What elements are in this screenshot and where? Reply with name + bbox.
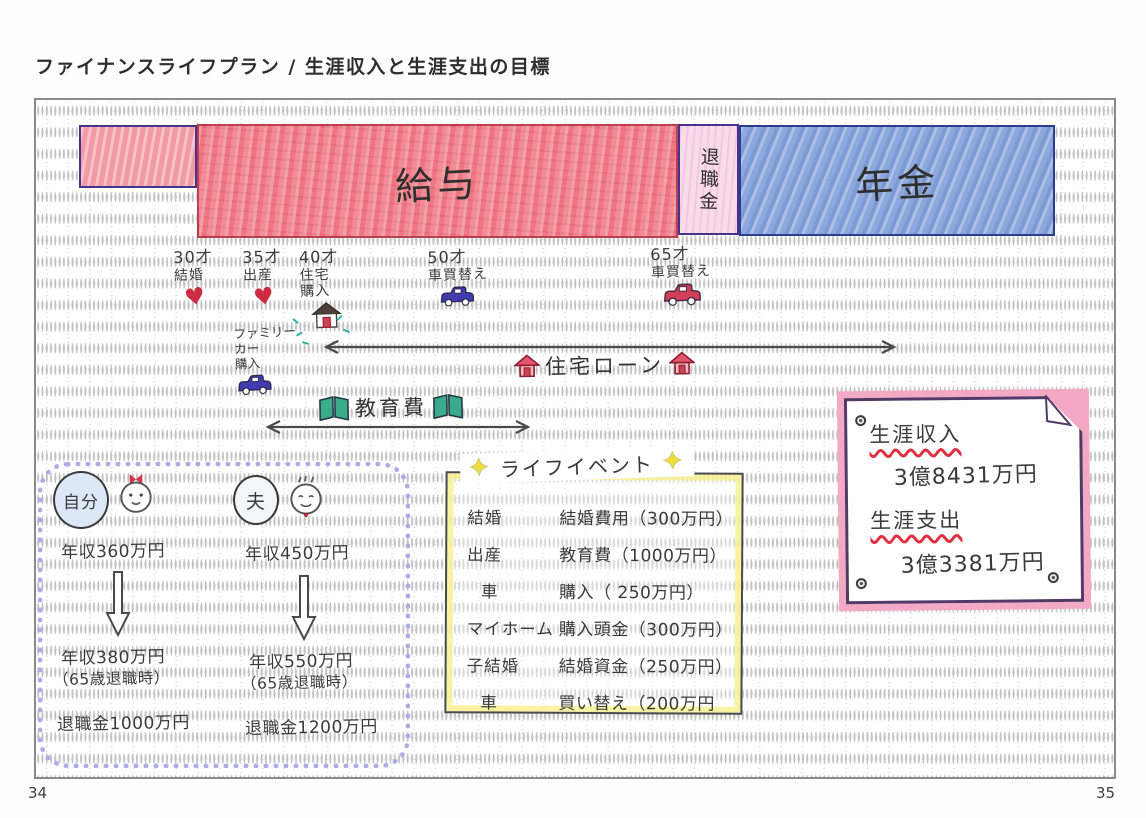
- life-events-title-text: ライフイベント: [499, 448, 654, 482]
- down-arrow-icon: [291, 573, 317, 643]
- life-event-row: 車 購入（ 250万円）: [467, 571, 733, 609]
- confetti: [343, 329, 350, 334]
- person-self-name: 自分: [63, 488, 99, 513]
- car-icon-red: [661, 282, 703, 307]
- milestone-event: 車買替え: [428, 266, 501, 285]
- sparkle-icon: ✦: [468, 453, 493, 484]
- milestone-event-line2: 購入: [300, 282, 357, 300]
- housing-loan-label: 住宅ローン: [514, 348, 695, 381]
- page-number-right: 35: [1096, 784, 1115, 802]
- person-husband-name-bubble: 夫: [233, 475, 279, 525]
- event-item: 車: [467, 578, 559, 602]
- event-cost: 購入頭金（300万円）: [559, 615, 733, 641]
- milestone-event: 出産: [243, 266, 304, 284]
- book-spread: ファイナンスライフプラン / 生涯収入と生涯支出の目標 給与 退職金 年金 30…: [0, 0, 1146, 818]
- man-face-icon: [285, 475, 327, 523]
- heart-icon: ♥: [252, 285, 276, 310]
- book-icon: [432, 393, 464, 420]
- milestone-event-line1: 住宅: [299, 266, 356, 284]
- income-now: 年収450万円: [245, 538, 349, 565]
- heart-icon: ♥: [183, 285, 207, 310]
- milestone-age40: 40才 住宅 購入: [299, 242, 358, 330]
- income-now: 年収360万円: [61, 536, 165, 563]
- life-event-row: 出産 教育費（1000万円）: [467, 534, 733, 572]
- confetti: [302, 341, 309, 345]
- down-arrow-icon: [105, 571, 131, 637]
- person-husband-name: 夫: [246, 487, 266, 514]
- income-note: （65歳退職時）: [53, 666, 170, 690]
- sparkle-icon: ✦: [661, 446, 686, 477]
- lifetime-summary-note: 生涯収入 3億8431万円 生涯支出 3億3381万円: [844, 396, 1084, 604]
- family-car-line3: 購入: [235, 353, 298, 371]
- pin-icon: [1048, 572, 1059, 583]
- education-arrow: [262, 418, 534, 436]
- house-red-icon: [669, 351, 695, 375]
- milestone-age: 40才: [299, 242, 356, 268]
- event-item: 出産: [467, 541, 559, 565]
- milestone-age65: 65才 車買替え: [650, 239, 724, 308]
- milestone-age: 50才: [427, 242, 500, 268]
- milestone-age: 30才: [173, 242, 238, 268]
- milestone-age: 65才: [650, 239, 723, 265]
- car-icon-blue: [236, 374, 274, 397]
- event-cost: 買い替え（200万円: [558, 689, 715, 715]
- house-red-icon: [514, 354, 540, 378]
- folded-corner: [1043, 395, 1083, 435]
- lifetime-expense-label: 生涯支出: [870, 504, 962, 535]
- income-note: （65歳退職時）: [241, 670, 358, 694]
- event-item: 子結婚: [467, 652, 559, 676]
- event-item: 結婚: [467, 504, 559, 528]
- income-future: 年収550万円: [249, 646, 353, 673]
- bar-early-salary: [79, 125, 197, 188]
- retirement-money: 退職金1000万円: [57, 708, 190, 735]
- lifetime-income-value: 3億8431万円: [893, 456, 1038, 492]
- salary-label: 給与: [394, 151, 481, 210]
- retirement-bonus-label: 退職金: [694, 146, 723, 213]
- pension-label: 年金: [854, 151, 941, 210]
- girl-face-icon: [115, 471, 157, 515]
- event-cost: 教育費（1000万円）: [559, 541, 727, 567]
- person-self-name-bubble: 自分: [53, 471, 109, 529]
- pin-icon: [856, 578, 867, 589]
- car-icon-blue: [438, 286, 476, 308]
- milestone-age50: 50才 車買替え: [427, 242, 501, 308]
- life-events-rows: 結婚 結婚費用（300万円） 出産 教育費（1000万円） 車 購入（ 250万…: [466, 497, 733, 720]
- bar-retirement-bonus: 退職金: [678, 124, 739, 235]
- pin-icon: [855, 415, 866, 426]
- household-income-cloud: 自分 年収360万円 年収380万円 （65歳退職時） 退職金1000万円 夫 …: [38, 462, 410, 768]
- house-icon: [311, 302, 343, 330]
- page-title: ファイナンスライフプラン / 生涯収入と生涯支出の目標: [35, 52, 551, 79]
- housing-loan-text: 住宅ローン: [545, 349, 664, 381]
- confetti: [296, 331, 303, 337]
- bar-pension: 年金: [739, 125, 1055, 236]
- retirement-money: 退職金1200万円: [245, 712, 378, 739]
- income-future: 年収380万円: [61, 642, 165, 669]
- family-car-note: ファミリー カー 購入: [233, 323, 299, 400]
- page-number-left: 34: [28, 784, 47, 802]
- life-event-row: 子結婚 結婚資金（250万円）: [467, 645, 733, 683]
- life-events-box: 結婚 結婚費用（300万円） 出産 教育費（1000万円） 車 購入（ 250万…: [444, 471, 743, 715]
- event-cost: 結婚費用（300万円）: [559, 504, 733, 530]
- event-cost: 結婚資金（250万円）: [559, 652, 733, 678]
- life-event-row: 結婚 結婚費用（300万円）: [467, 497, 733, 535]
- event-item: マイホーム: [467, 615, 559, 639]
- life-event-row: 車 買い替え（200万円: [466, 682, 732, 720]
- person-husband-header: 夫: [233, 475, 327, 525]
- milestone-age35: 35才 出産 ♥: [242, 242, 304, 309]
- milestone-age30: 30才 結婚 ♥: [173, 242, 239, 309]
- milestone-event: 結婚: [174, 266, 239, 284]
- life-event-row: マイホーム 購入頭金（300万円）: [467, 608, 733, 646]
- lifetime-income-label: 生涯収入: [869, 418, 961, 449]
- bar-salary: 給与: [197, 124, 678, 238]
- milestone-age: 35才: [242, 242, 303, 268]
- lifetime-expense-value: 3億3381万円: [900, 544, 1045, 580]
- milestone-event: 車買替え: [651, 263, 724, 282]
- event-cost: 購入（ 250万円）: [559, 578, 704, 604]
- graph-paper: 給与 退職金 年金 30才 結婚 ♥ 35才 出産 ♥ 40才 住宅 購入 50…: [34, 98, 1116, 779]
- person-self-header: 自分: [53, 471, 157, 529]
- event-item: 車: [466, 689, 558, 713]
